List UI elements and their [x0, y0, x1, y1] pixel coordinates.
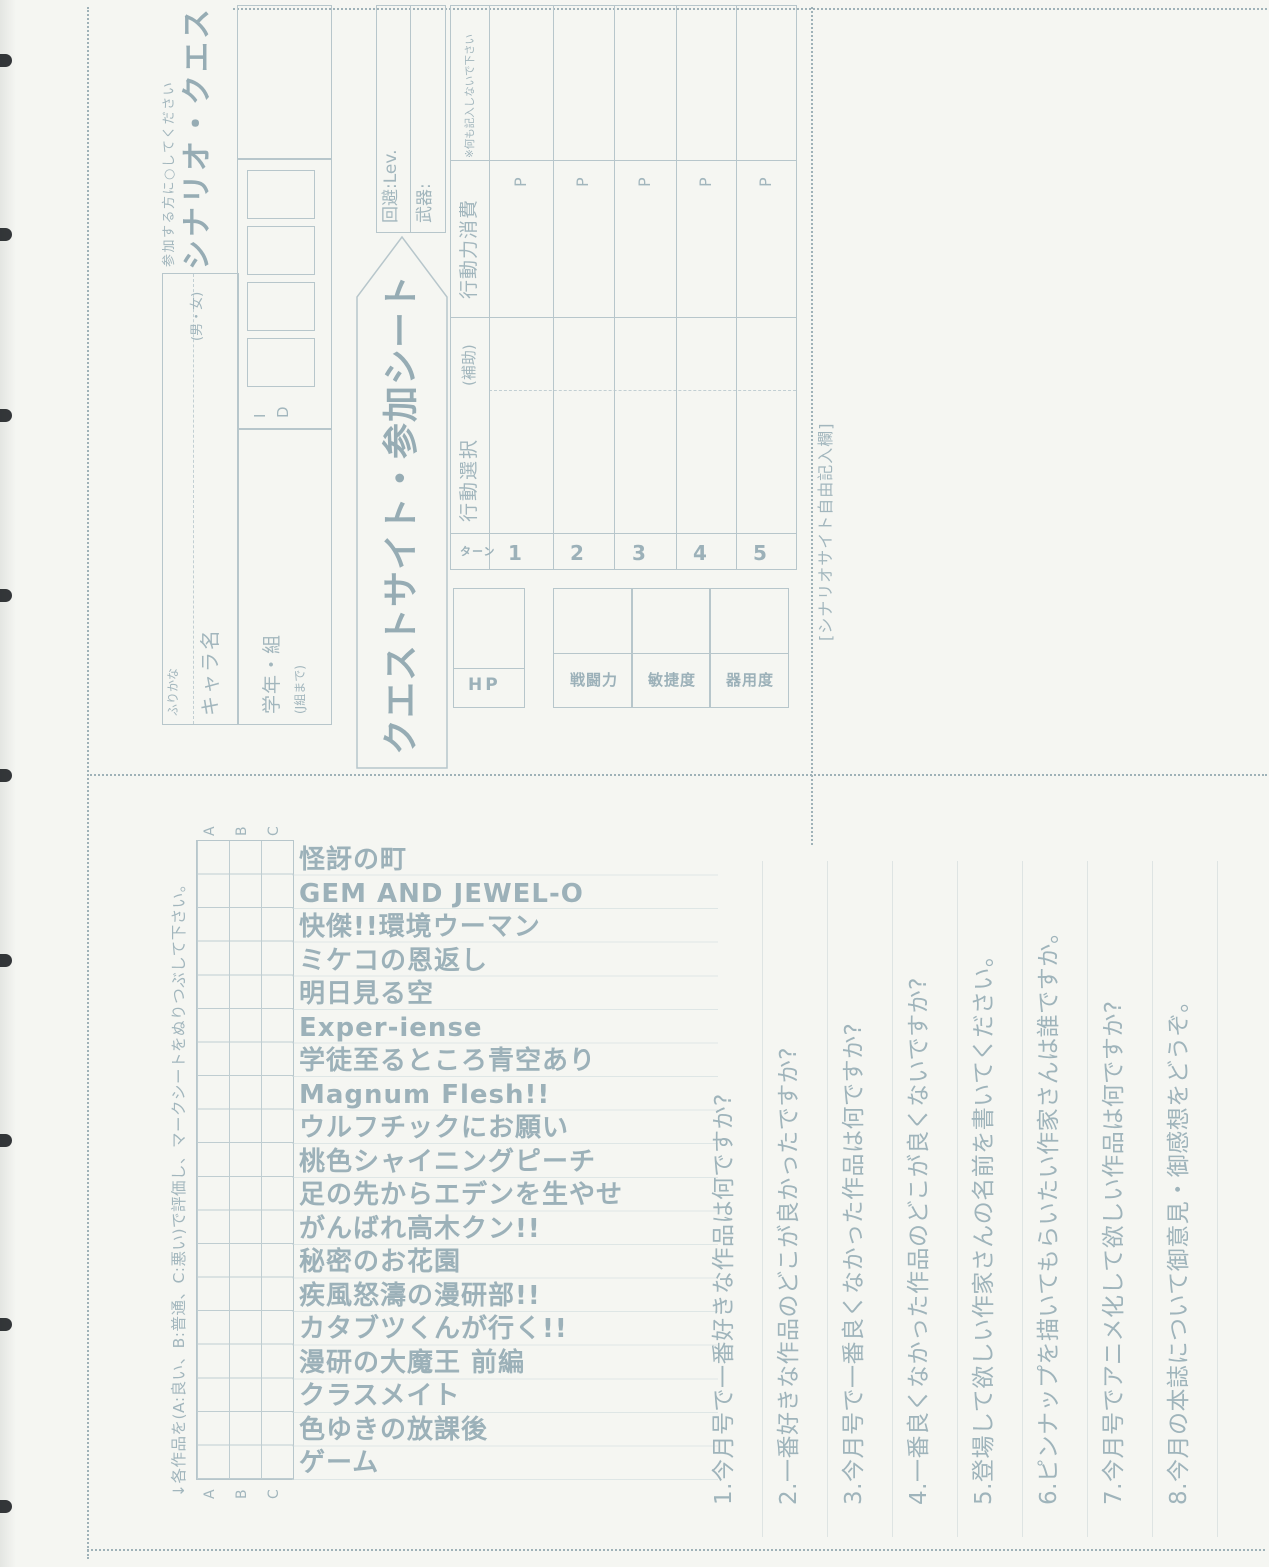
id-label: ID	[249, 408, 294, 418]
rotated-document: 参加する方に○してください シナリオ・クエスト ふりかな キャラ名 (男・女) …	[0, 0, 1269, 1567]
id-digit-box	[247, 338, 315, 387]
cost-unit: P	[636, 177, 654, 187]
question-separator	[1022, 861, 1023, 1537]
question-separator	[1152, 861, 1153, 1537]
question-separator	[892, 861, 893, 1537]
question-separator	[1087, 861, 1088, 1537]
join-instruction: 参加する方に○してください	[163, 81, 178, 267]
grade-row-label-b: B	[234, 826, 250, 836]
grade-row-label-a: A	[202, 1489, 218, 1499]
survey-question: 7.今月号でアニメ化して欲しい作品は何ですか?	[1101, 1000, 1127, 1505]
survey-question: 1.今月号で一番好きな作品は何ですか?	[711, 1093, 737, 1505]
grade-row-label-b: B	[234, 1489, 250, 1499]
evade-level-label: 回避:Lev.	[382, 149, 402, 223]
question-separator	[957, 861, 958, 1537]
scanned-survey-page: 参加する方に○してください シナリオ・クエスト ふりかな キャラ名 (男・女) …	[0, 0, 1269, 1567]
banner-title: クエストサイト・参加シート	[356, 274, 448, 755]
divider	[454, 668, 524, 669]
id-digit-box	[247, 282, 315, 331]
action-select-header: 行動選択	[459, 438, 481, 522]
grade-note: (J組まで)	[294, 665, 308, 714]
turn-table	[450, 5, 797, 570]
weapon-label: 武器:	[416, 183, 436, 223]
free-entry-label: [シナリオサイト自由記入欄]	[817, 423, 835, 642]
survey-question: 3.今月号で一番良くなかった作品は何ですか?	[841, 1023, 867, 1505]
cut-line-center	[87, 774, 1267, 776]
survey-instruction: ↓各作品を(A:良い、B:普通、C:悪い)で評価し、マークシートをぬりつぶして下…	[171, 876, 189, 1497]
grade-label: 学年・組	[262, 634, 284, 714]
grade-row-label-c: C	[266, 826, 282, 836]
id-digit-box	[247, 170, 315, 219]
question-separator	[1217, 861, 1218, 1537]
furigana-divider	[163, 274, 194, 724]
support-header: (補助)	[461, 344, 478, 386]
sheet-title: シナリオ・クエスト	[181, 0, 216, 270]
survey-question: 2.一番好きな作品のどこが良かったですか?	[776, 1047, 802, 1505]
question-separator	[762, 861, 763, 1537]
survey-question: 6.ピンナップを描いてもらいたい作家さんは誰ですか。	[1036, 920, 1062, 1505]
stat-box-agility	[631, 588, 711, 708]
id-digit-box	[247, 226, 315, 275]
stat-box-combat	[553, 588, 633, 708]
grade-row-label-a: A	[202, 826, 218, 836]
cost-unit: P	[757, 177, 775, 187]
mark-sheet-grid	[196, 840, 294, 1480]
grade-field	[237, 428, 332, 725]
survey-question: 8.今月の本誌について御意見・御感想をどうぞ。	[1166, 989, 1192, 1505]
cut-line-top	[87, 7, 89, 1559]
cost-unit: P	[512, 177, 530, 187]
cost-unit: P	[697, 177, 715, 187]
action-cost-header: 行動力消費	[459, 199, 481, 299]
stamp-box	[237, 5, 332, 160]
cost-unit: P	[574, 177, 592, 187]
gender-label: (男・女)	[191, 292, 206, 341]
divider	[410, 6, 411, 232]
free-entry-divider	[811, 7, 813, 845]
do-not-write-header: ※何も記入しないで下さい	[464, 34, 476, 158]
survey-question: 5.登場して欲しい作家さんの名前を書いてください。	[971, 944, 997, 1505]
character-name-label: キャラ名	[199, 628, 222, 716]
action-support-divider	[489, 390, 796, 391]
grade-row-label-c: C	[266, 1489, 282, 1499]
cut-line-left	[87, 1549, 1265, 1551]
stat-box-dexterity	[709, 588, 789, 708]
question-separator	[827, 861, 828, 1537]
furigana-label: ふりかな	[167, 668, 181, 716]
survey-question: 4.一番良くなかった作品のどこが良くないですか?	[906, 977, 932, 1505]
